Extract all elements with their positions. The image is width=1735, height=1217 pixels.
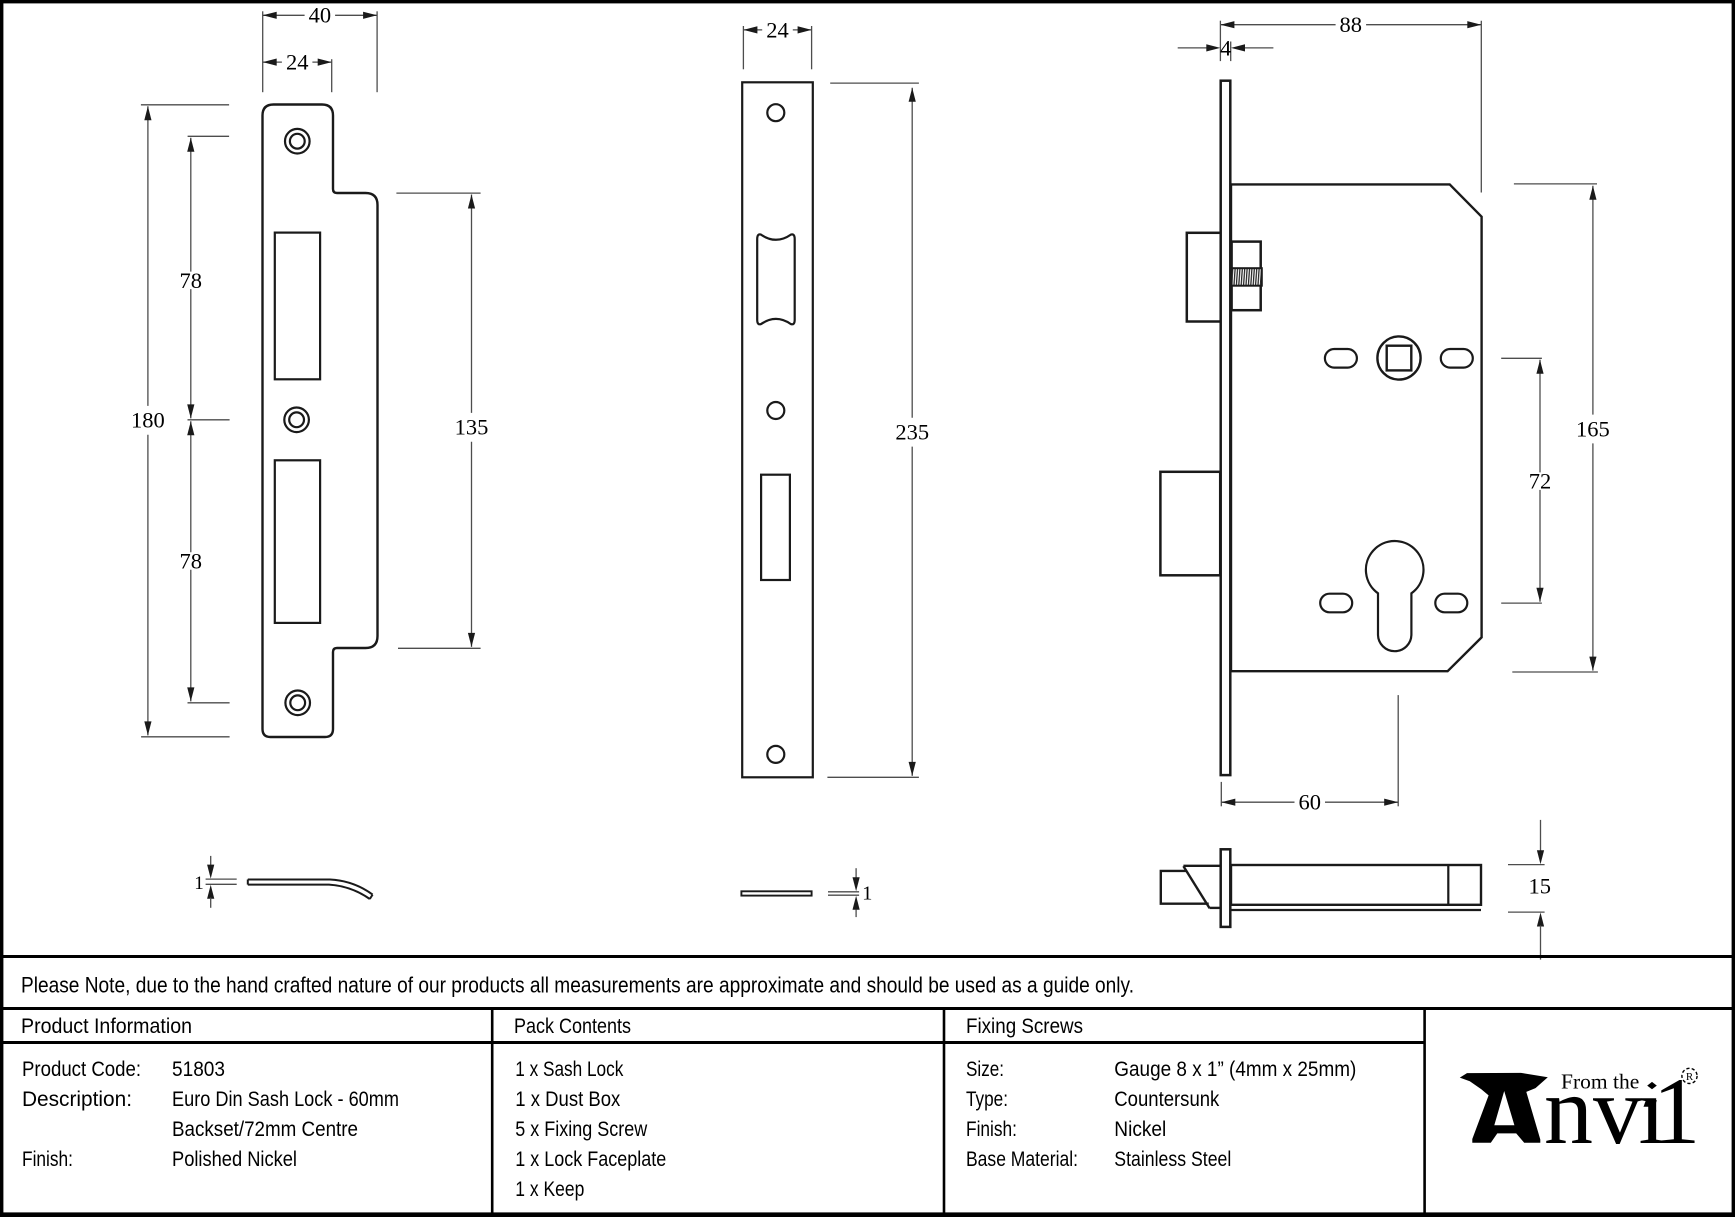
- svg-text:15: 15: [1529, 874, 1552, 899]
- svg-text:Size:: Size:: [966, 1057, 1004, 1081]
- svg-text:Polished Nickel: Polished Nickel: [172, 1147, 297, 1171]
- svg-text:Please Note, due to the hand c: Please Note, due to the hand crafted nat…: [21, 973, 1134, 998]
- svg-text:Product Information: Product Information: [21, 1015, 192, 1038]
- svg-text:Euro Din Sash Lock - 60mm: Euro Din Sash Lock - 60mm: [172, 1087, 399, 1111]
- svg-text:1 x Keep: 1 x Keep: [515, 1177, 584, 1201]
- svg-text:135: 135: [455, 415, 489, 440]
- svg-text:24: 24: [766, 17, 789, 42]
- svg-text:24: 24: [286, 50, 309, 75]
- svg-text:5 x Fixing Screw: 5 x Fixing Screw: [515, 1117, 647, 1141]
- svg-text:Pack Contents: Pack Contents: [514, 1015, 631, 1038]
- svg-text:Base Material:: Base Material:: [966, 1147, 1078, 1171]
- svg-text:165: 165: [1576, 416, 1610, 441]
- svg-text:Nickel: Nickel: [1114, 1117, 1166, 1141]
- svg-text:Stainless Steel: Stainless Steel: [1114, 1147, 1231, 1171]
- svg-text:60: 60: [1299, 790, 1322, 815]
- svg-text:235: 235: [895, 420, 929, 445]
- svg-text:From the: From the: [1561, 1070, 1639, 1094]
- svg-text:1 x Sash Lock: 1 x Sash Lock: [515, 1057, 623, 1081]
- svg-text:Description:: Description:: [22, 1087, 132, 1111]
- svg-text:Product Code:: Product Code:: [22, 1057, 141, 1081]
- svg-text:R: R: [1686, 1071, 1694, 1083]
- svg-text:Backset/72mm Centre: Backset/72mm Centre: [172, 1117, 358, 1141]
- svg-text:1 x Lock Faceplate: 1 x Lock Faceplate: [515, 1147, 666, 1171]
- svg-text:1: 1: [862, 883, 872, 905]
- svg-text:40: 40: [309, 3, 332, 28]
- svg-text:180: 180: [131, 408, 165, 433]
- svg-text:4: 4: [1220, 35, 1231, 60]
- svg-text:Type:: Type:: [966, 1087, 1008, 1111]
- svg-text:72: 72: [1529, 469, 1552, 494]
- svg-text:Finish:: Finish:: [966, 1117, 1017, 1141]
- svg-text:1 x Dust Box: 1 x Dust Box: [515, 1087, 620, 1111]
- svg-text:51803: 51803: [172, 1057, 225, 1081]
- svg-text:78: 78: [180, 548, 203, 573]
- svg-text:78: 78: [180, 268, 203, 293]
- svg-text:88: 88: [1340, 12, 1363, 37]
- svg-text:Finish:: Finish:: [22, 1147, 73, 1171]
- svg-text:1: 1: [194, 873, 204, 894]
- svg-text:Gauge 8 x 1” (4mm x 25mm): Gauge 8 x 1” (4mm x 25mm): [1114, 1057, 1356, 1081]
- svg-text:Countersunk: Countersunk: [1114, 1087, 1219, 1111]
- svg-text:Fixing Screws: Fixing Screws: [966, 1015, 1083, 1038]
